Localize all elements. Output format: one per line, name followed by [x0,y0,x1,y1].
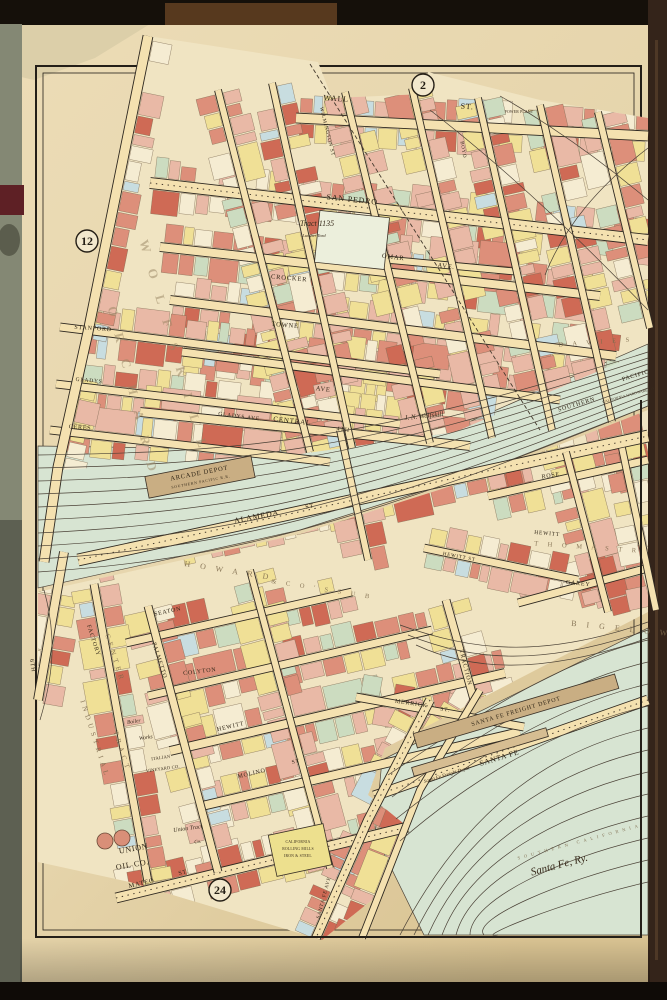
plate-number: 12 [81,234,93,248]
building [102,365,115,386]
atlas-page: ARCADE DEPOTSOUTHERN PACIFIC R.R.SANTA F… [0,0,667,1000]
building [178,255,194,276]
building [303,636,321,654]
building [155,157,169,178]
building [483,97,505,119]
building [446,100,457,120]
book-left-edge-lower [0,520,22,982]
building [504,304,523,322]
building [138,92,164,118]
oil-tank-1-shape [97,833,113,849]
bookmark-tab [0,185,24,215]
building [213,231,234,249]
building [175,282,195,297]
building [135,116,154,136]
building [95,407,137,434]
building [149,41,172,64]
map-label-power-plant: POWER PLANT [505,110,534,114]
building [211,285,227,301]
building [300,98,312,112]
building [195,278,212,299]
building [487,567,512,592]
building [208,258,239,285]
map-label-rolling-mills: ROLLING MILLS [282,847,314,851]
building [183,227,194,245]
building [194,257,209,277]
building [378,128,398,149]
building [229,328,245,345]
building [168,160,180,179]
building [361,674,383,696]
map-label-co: Co. [194,840,202,846]
building [165,224,184,244]
building [549,551,569,572]
building [161,253,179,274]
building [134,771,158,797]
building [227,282,241,303]
plate-number: 24 [214,883,226,897]
building [344,273,359,291]
map-label-california: CALIFORNIA [286,840,311,844]
building [195,195,209,215]
building [179,193,196,215]
building [429,528,448,547]
map-label-tract-1135: Tract 1135 [300,219,334,228]
plate-number: 2 [420,78,426,92]
building [614,501,631,517]
building [151,190,180,217]
building [206,321,219,341]
building [494,143,517,166]
building [348,301,368,319]
plate-reference-2: 2 [412,74,434,96]
building [135,342,166,367]
building [90,440,113,460]
paper-bottom-shadow [20,938,650,982]
book-top-spine-patch [165,3,337,25]
building [119,191,142,214]
building [112,442,126,460]
building [138,794,161,816]
building [454,483,468,499]
oil-tank-1 [97,833,113,849]
map-label-st: ST. [460,102,474,112]
building [100,584,123,608]
oil-tank-2 [114,830,130,846]
map-label-iron-steel: IRON & STEEL [284,854,312,858]
building [443,558,457,573]
building [196,628,217,648]
building [449,226,473,251]
building [194,229,213,247]
building [57,607,75,628]
map-label-lumber-yard: Lumber Yard [301,233,326,238]
building [446,527,468,551]
building [79,602,94,618]
building [455,560,471,578]
building [103,270,122,290]
building [104,606,125,627]
plate-reference-24: 24 [209,879,231,901]
building [185,320,206,340]
building [147,846,166,868]
building [205,381,217,397]
building [245,329,256,346]
oil-tank-2-shape [114,830,130,846]
building [561,295,583,317]
map-label-wall: WALL [323,93,349,104]
book-right-edge-streak [655,40,658,960]
atlas-map-plate: ARCADE DEPOTSOUTHERN PACIFIC R.R.SANTA F… [0,0,667,1000]
building [507,542,531,564]
plate-reference-12: 12 [76,230,98,252]
book-bottom-edge [0,982,667,1000]
building [153,419,177,440]
building [180,167,196,182]
building [625,586,650,611]
building [74,400,100,427]
